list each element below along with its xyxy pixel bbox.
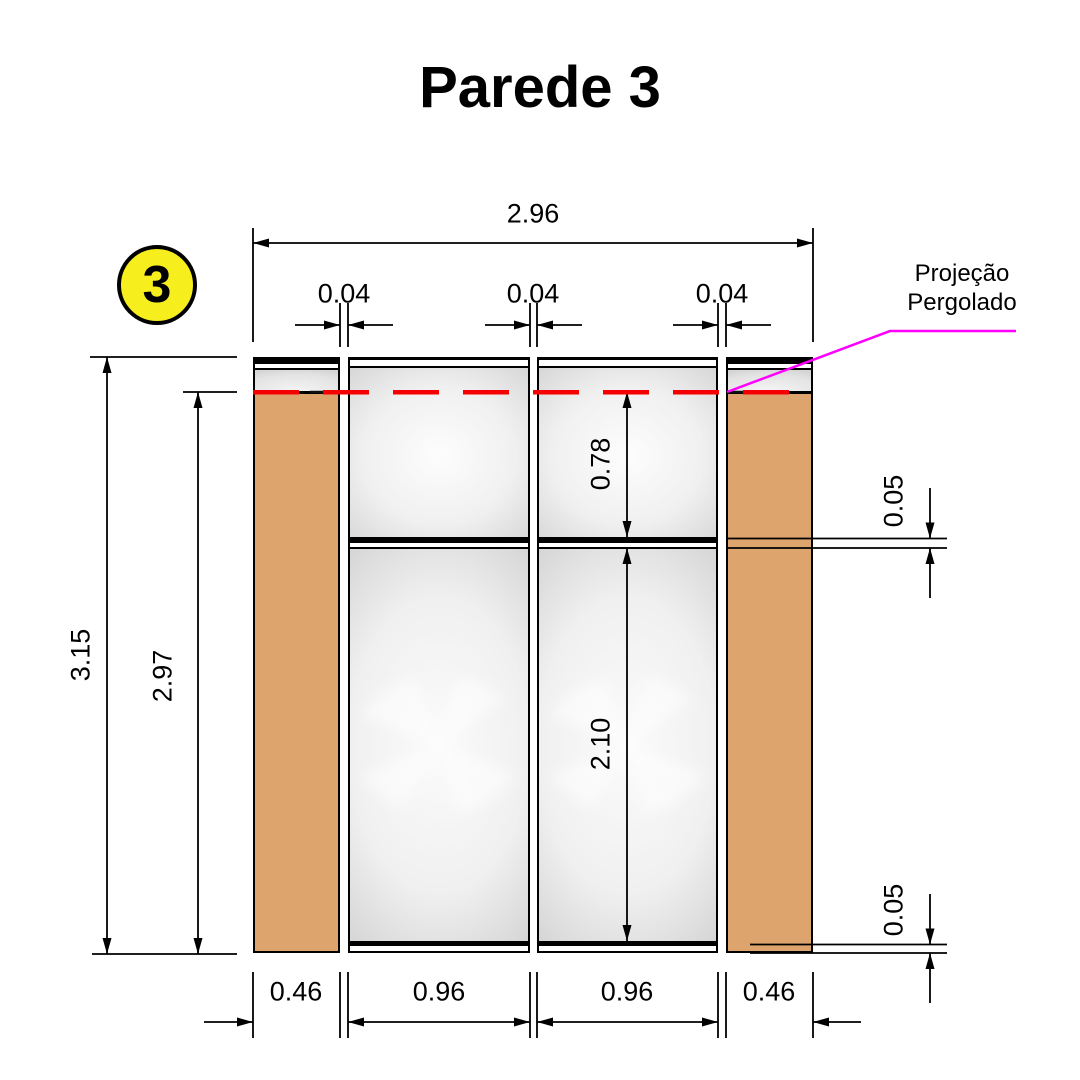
dimension-linework — [0, 0, 1080, 1080]
drawing-canvas: Parede 3 3 Projeção Pergolado — [0, 0, 1080, 1080]
pergola-leader-line — [727, 331, 1016, 392]
dimension-lines — [90, 228, 947, 1038]
